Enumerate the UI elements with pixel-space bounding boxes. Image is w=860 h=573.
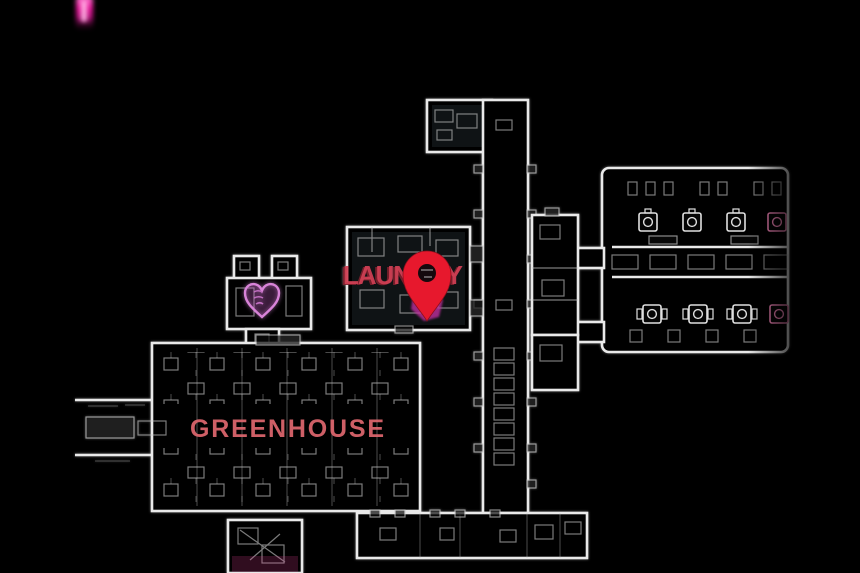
facility-map: GREENHOUSE LAUNDRY LAUNDRY: [0, 0, 860, 573]
south-corridor: [357, 510, 587, 558]
mid-rooms: [532, 208, 578, 390]
map-canvas[interactable]: GREENHOUSE LAUNDRY LAUNDRY: [0, 0, 860, 573]
east-wing: [572, 168, 788, 352]
greenhouse-label: GREENHOUSE: [190, 415, 386, 443]
svg-text:GREENHOUSE: GREENHOUSE: [190, 415, 386, 443]
storage-room: [228, 520, 302, 573]
glitch-artifact-core: [81, 0, 87, 22]
